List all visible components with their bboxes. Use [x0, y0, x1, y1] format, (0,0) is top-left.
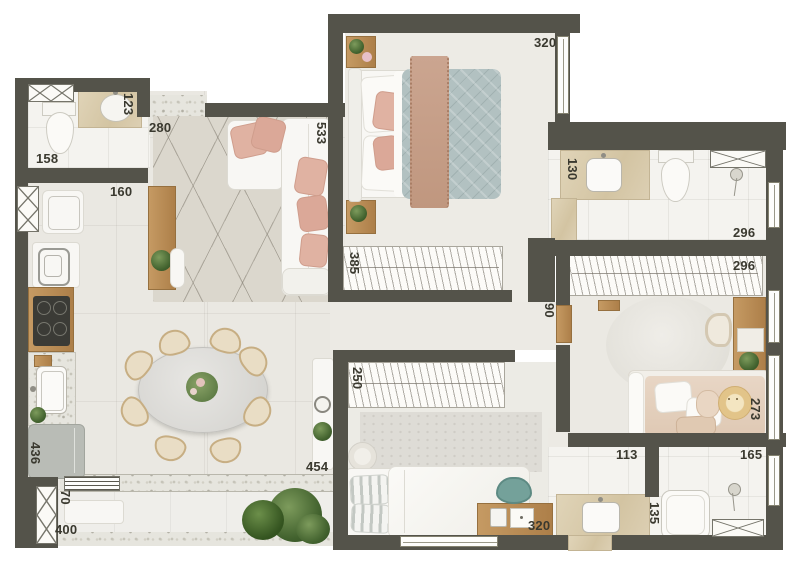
balcony-plant [242, 500, 284, 540]
notepad-dot [520, 516, 523, 519]
window-glazing [563, 39, 564, 113]
dim-bath2-width: 296 [733, 226, 755, 239]
shaft-bath3 [712, 519, 764, 537]
wall-bath2-top [548, 122, 786, 150]
kids-shelf [598, 300, 620, 311]
burner [37, 301, 51, 315]
burner [37, 322, 51, 336]
nightstand-plant [350, 205, 367, 222]
dim-bath3-tub: 135 [648, 502, 661, 524]
shaft-balcony-wall [36, 486, 57, 544]
lion-plush [718, 386, 752, 420]
dim-kids-bed-wall: 273 [749, 398, 762, 420]
dim-hallway-width: 90 [543, 303, 556, 318]
wall-below-master-wardrobe [335, 290, 512, 302]
window-kids-1 [768, 290, 780, 343]
dim-bath3-shower: 165 [740, 448, 762, 461]
wardrobe-rail [352, 383, 501, 384]
console-table [312, 358, 334, 470]
lion-eye [728, 398, 730, 400]
round-tray [314, 396, 331, 413]
centerpiece-flower [196, 378, 205, 387]
wall-corridor-block [528, 238, 555, 302]
dim-master-bedroom: 320 [534, 36, 556, 49]
balcony-bench [64, 500, 124, 524]
dim-master-wardrobe: 385 [348, 252, 361, 274]
bath3-shower-head [728, 483, 741, 496]
laundry-tub-basin [48, 196, 80, 230]
striped-pillow [350, 503, 391, 534]
window-kids-2 [768, 355, 780, 440]
wall-bath2-kids [548, 240, 783, 256]
bath3-door-sill [568, 535, 612, 551]
bed3-wardrobe [348, 362, 505, 408]
kids-artwork [737, 328, 764, 352]
kids-desk-plant [739, 352, 759, 371]
burner [53, 301, 67, 315]
washing-machine-drum [44, 255, 62, 277]
master-wardrobe [343, 246, 503, 292]
refrigerator-door-seam [74, 428, 75, 473]
lion-eye [736, 398, 738, 400]
sofa-pillow [298, 233, 329, 269]
bath2-sink [586, 158, 622, 192]
dim-kitchen-run: 436 [29, 442, 42, 464]
dim-bath3-vanity: 113 [616, 448, 638, 461]
bath2-faucet [601, 153, 606, 158]
floor-plan: 320 123 280 533 158 160 385 130 296 296 … [0, 0, 800, 574]
throw-blanket [410, 56, 449, 208]
laptop [490, 508, 507, 527]
dining-centerpiece [186, 372, 218, 402]
dim-kids-wardrobe: 296 [733, 259, 755, 272]
shaft-kitchen-wall [17, 186, 39, 232]
dim-balcony-length: 400 [55, 523, 77, 536]
window-glazing [774, 358, 775, 439]
dim-bed3-desk-wall: 320 [528, 519, 550, 532]
wall-bath3-top [568, 433, 786, 447]
wardrobe-rail [572, 273, 758, 274]
dim-bath1-vanity: 123 [122, 93, 135, 115]
dim-balcony-door: 454 [306, 460, 328, 473]
balcony-grille [64, 476, 120, 491]
shaft-bath2 [710, 150, 766, 168]
window-master [557, 36, 569, 114]
dim-bed3-wardrobe: 250 [351, 367, 364, 389]
window-glazing [774, 458, 775, 505]
wall-kids-left-upper [556, 256, 570, 305]
bath2-door-sill [551, 198, 577, 242]
bedroom3-rug [360, 412, 542, 472]
wall-bedroom3-top [333, 350, 515, 362]
sofa-pillow [293, 156, 329, 198]
wall-master-top [328, 14, 580, 33]
kitchen-sink-basin [41, 371, 64, 411]
bath3-faucet [598, 497, 603, 502]
wall-living-master [328, 14, 343, 302]
dim-entry: 280 [149, 121, 171, 134]
kitchen-faucet [30, 386, 36, 392]
window-glazing [403, 542, 497, 543]
corridor-floor [330, 302, 557, 350]
wall-bedroom3-left [333, 350, 348, 548]
shaft-bath1 [28, 84, 74, 102]
kids-door-sill [556, 305, 572, 343]
window-bath2 [768, 182, 780, 228]
kids-desk-chair [705, 313, 732, 347]
window-glazing [774, 293, 775, 342]
desk-chair-teal [496, 477, 532, 504]
basket [170, 248, 185, 288]
nightstand-plant [349, 39, 364, 54]
tv-console-plant [151, 250, 172, 271]
wall-bath1-right [137, 78, 150, 117]
striped-pillow [349, 474, 391, 506]
dim-living-sofa-wall: 533 [315, 122, 328, 144]
sofa-armrest [282, 268, 331, 295]
dim-balcony-depth: 70 [59, 490, 72, 505]
wall-entry-top [205, 103, 345, 117]
wall-bath1-bottom [15, 168, 148, 183]
window-glazing [774, 185, 775, 227]
nightstand-lamp [362, 52, 372, 62]
window-bedroom3 [400, 536, 498, 547]
wall-bath3-divider [645, 447, 659, 497]
burner [53, 322, 67, 336]
sofa-pillow [296, 194, 331, 233]
centerpiece-flower [190, 388, 197, 395]
balcony-plant [296, 514, 330, 544]
bath3-sink [582, 502, 620, 533]
bathtub-inner [666, 495, 705, 535]
kitchen-plant [30, 407, 46, 423]
sleeping-baby [696, 390, 720, 418]
dim-kitchen-passage: 160 [110, 185, 132, 198]
console-plant [313, 422, 332, 441]
duvet-fold-line [404, 470, 405, 533]
kids-bed-headboard [628, 372, 644, 438]
window-bath3 [768, 455, 780, 506]
dim-bath1-width: 158 [36, 152, 58, 165]
wall-kids-left-lower [556, 345, 570, 432]
dim-bath2-vanity: 130 [566, 158, 579, 180]
wardrobe-rail [347, 267, 499, 268]
wall-plate-decor [348, 442, 377, 471]
